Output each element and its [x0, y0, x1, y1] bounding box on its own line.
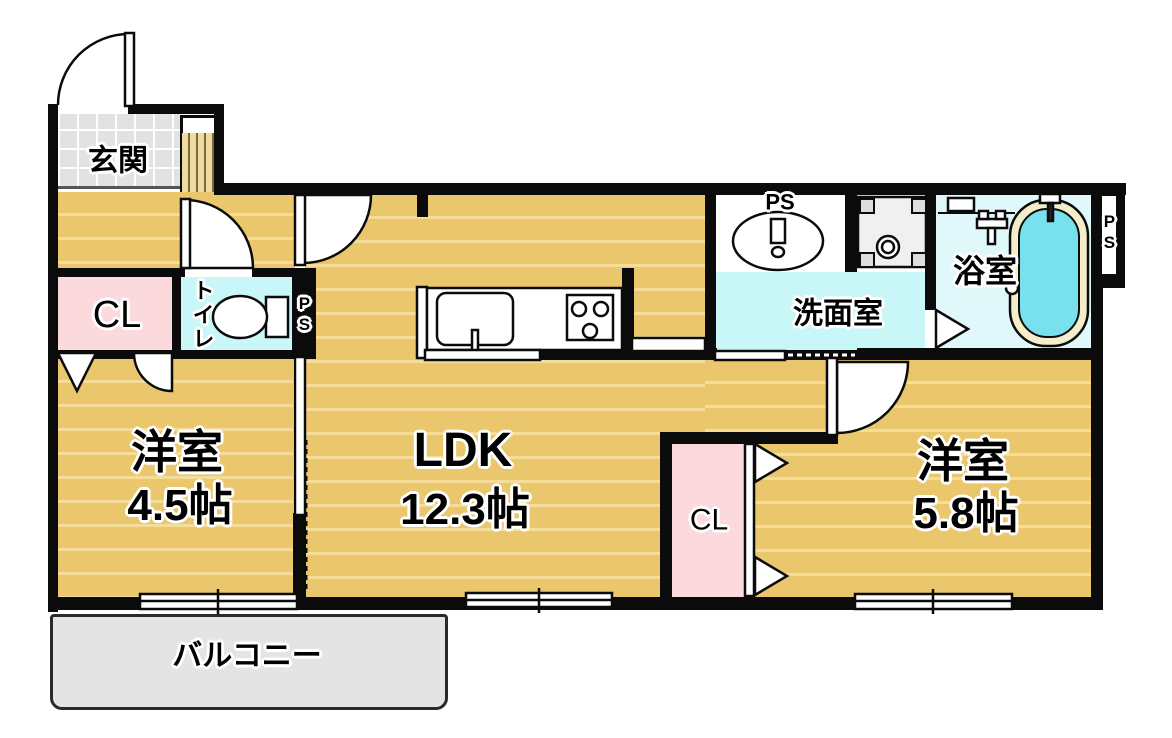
window-room58 [855, 589, 1012, 614]
floorplan: 玄関 CL トイレ PS 洋室 4.5帖 LDK 12.3帖 PS 洗面室 浴室… [0, 0, 1172, 738]
stove-burner [572, 302, 586, 316]
stove-burner [583, 324, 597, 338]
label-senmen: 洗面室 [793, 298, 883, 330]
bath-shower-stem [988, 228, 995, 244]
closet-right-door-panel [745, 444, 754, 596]
ldk-door-arc [303, 195, 371, 263]
entry-door-panel [125, 33, 134, 106]
washer-pan-corner [860, 199, 874, 213]
closet-left-door-arc [134, 353, 172, 391]
label-toilet: トイレ [190, 279, 213, 351]
bath-mixer-knob [979, 211, 988, 219]
window-room45 [140, 589, 297, 614]
kitchen-counter-side [417, 287, 427, 358]
fixtures-overlay [0, 0, 1172, 738]
label-closet-left: CL [93, 296, 142, 336]
toilet-tank [266, 297, 288, 337]
washer-pan-corner [912, 253, 926, 267]
toilet-door-panel [181, 199, 190, 268]
window-ldk [466, 588, 612, 613]
room58-door-arc [837, 362, 908, 433]
closet-left-door-fold [58, 353, 96, 391]
toilet-door-arc [185, 200, 253, 268]
label-genkan: 玄関 [88, 145, 148, 177]
label-room58: 洋室 [917, 437, 1009, 485]
label-ldk-size: 12.3帖 [400, 487, 530, 533]
label-room45: 洋室 [131, 428, 223, 476]
bath-cabinet [948, 198, 974, 211]
washer-drain [882, 241, 894, 253]
kitchen-faucet [472, 330, 478, 352]
tub-faucet-stem [1048, 203, 1053, 221]
washer-pan-corner [912, 199, 926, 213]
label-ps-right: PS [1100, 212, 1118, 254]
vanity-drain [772, 247, 784, 257]
label-ldk: LDK [414, 426, 513, 476]
fridge-space [632, 338, 705, 351]
bathtub-water [1019, 209, 1079, 337]
closet-right-door-fold [755, 557, 787, 595]
label-room58-size: 5.8帖 [913, 491, 1018, 537]
stove-burner [594, 302, 608, 316]
bath-door-fold [936, 310, 968, 348]
vanity-faucet [771, 219, 785, 243]
label-balcony: バルコニー [172, 640, 321, 672]
kitchen-counter-base [425, 350, 540, 360]
room58-door-panel [827, 358, 837, 435]
ldk-door-panel [295, 195, 305, 265]
label-room45-size: 4.5帖 [127, 483, 232, 529]
label-ps-vanity: PS [765, 190, 794, 213]
tub-faucet [1040, 194, 1060, 203]
senmen-sliding-door [715, 351, 785, 360]
toilet-bowl [213, 296, 267, 338]
closet-right-door-fold [755, 444, 787, 482]
washer-pan-corner [860, 253, 874, 267]
bath-mixer-knob [996, 211, 1005, 219]
label-closet-right: CL [690, 504, 728, 536]
entry-door-arc [58, 34, 129, 105]
partition-sliding-door [295, 357, 305, 515]
bath-mixer [977, 219, 1007, 228]
label-bath: 浴室 [953, 255, 1017, 289]
label-ps-toilet: PS [295, 294, 313, 336]
